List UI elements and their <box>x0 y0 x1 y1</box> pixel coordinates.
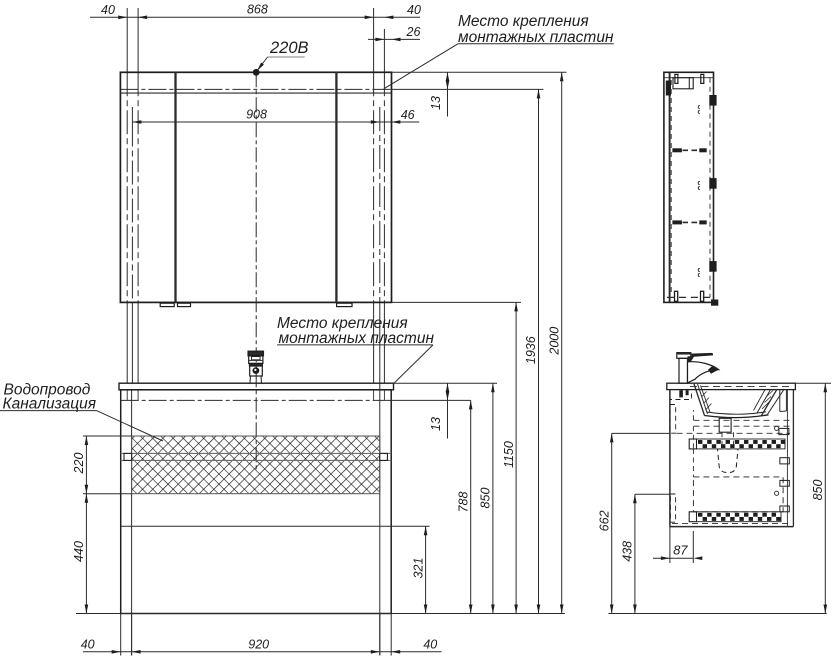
svg-text:662: 662 <box>597 510 611 531</box>
svg-text:87: 87 <box>673 543 688 558</box>
svg-text:920: 920 <box>248 638 269 652</box>
svg-text:2000: 2000 <box>547 327 561 356</box>
svg-text:908: 908 <box>246 107 267 121</box>
svg-text:220: 220 <box>72 453 86 475</box>
svg-text:440: 440 <box>72 541 86 562</box>
svg-text:40: 40 <box>101 3 115 17</box>
svg-text:монтажных пластин: монтажных пластин <box>458 29 614 46</box>
svg-text:монтажных пластин: монтажных пластин <box>279 330 435 347</box>
svg-text:46: 46 <box>401 108 415 122</box>
svg-text:438: 438 <box>621 541 635 562</box>
svg-text:1150: 1150 <box>502 441 516 468</box>
svg-text:788: 788 <box>456 492 470 513</box>
svg-text:40: 40 <box>423 638 437 652</box>
svg-text:40: 40 <box>81 638 95 652</box>
svg-text:Место крепления: Место крепления <box>458 13 589 30</box>
svg-text:850: 850 <box>479 488 493 509</box>
svg-text:850: 850 <box>811 480 825 501</box>
svg-text:1936: 1936 <box>524 336 538 364</box>
svg-text:13: 13 <box>429 96 443 110</box>
svg-text:13: 13 <box>429 417 443 431</box>
svg-text:321: 321 <box>411 558 425 579</box>
svg-text:220В: 220В <box>269 39 309 57</box>
svg-text:868: 868 <box>247 3 268 17</box>
svg-text:26: 26 <box>406 25 421 39</box>
svg-text:40: 40 <box>407 3 421 17</box>
